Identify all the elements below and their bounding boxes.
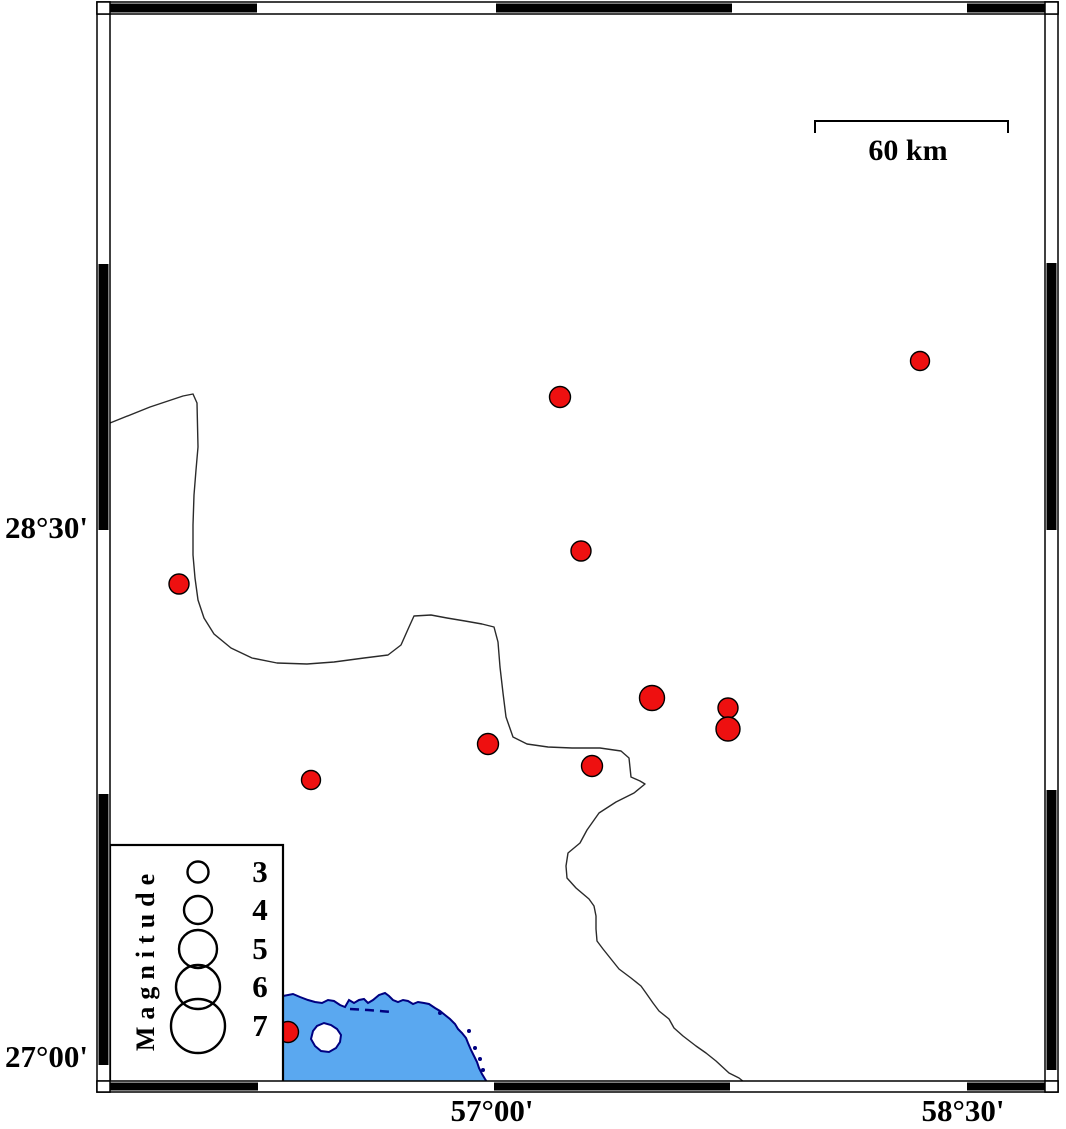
lon-label-58-30: 58°30' xyxy=(883,1092,1043,1129)
frame-segment xyxy=(494,1083,730,1091)
islet xyxy=(478,1057,482,1061)
frame-segment xyxy=(967,4,1045,13)
lon-label-57-00: 57°00' xyxy=(412,1092,572,1129)
lat-label-27-00: 27°00' xyxy=(0,1038,88,1076)
frame-segment xyxy=(103,1083,258,1091)
epicenter-dot xyxy=(478,734,499,755)
frame-segment xyxy=(967,1083,1045,1091)
epicenter-dot xyxy=(911,352,930,371)
legend-mag-label: 5 xyxy=(240,929,280,969)
epicenter-dot xyxy=(640,686,665,711)
legend-mag-label: 4 xyxy=(240,890,280,930)
scalebar-label: 60 km xyxy=(833,133,983,169)
legend-mag-label: 3 xyxy=(240,852,280,892)
islet xyxy=(481,1068,485,1072)
seismicity-map-page: 28°30' 27°00' 57°00' 58°30' 60 km Magnit… xyxy=(0,0,1066,1129)
frame-corner xyxy=(1045,2,1058,14)
legend-mag-label: 7 xyxy=(240,1006,280,1046)
islet xyxy=(473,1046,477,1050)
frame-segment xyxy=(99,794,109,1065)
islet xyxy=(438,1011,442,1015)
epicenter-dot xyxy=(582,756,603,777)
frame-corner xyxy=(97,2,110,14)
epicenter-dot xyxy=(718,698,738,718)
frame-segment xyxy=(1047,790,1057,1070)
legend-title: Magnitude xyxy=(131,867,161,1051)
epicenter-dot xyxy=(169,574,189,594)
frame-segment xyxy=(496,4,732,13)
lat-label-28-30: 28°30' xyxy=(0,509,88,547)
islet xyxy=(467,1029,471,1033)
frame-corner xyxy=(1045,1081,1058,1092)
epicenter-dot xyxy=(302,771,321,790)
frame-segment xyxy=(103,4,257,13)
frame-segment xyxy=(1047,263,1057,530)
epicenter-dot xyxy=(716,717,740,741)
epicenter-dot xyxy=(571,541,591,561)
epicenter-dot xyxy=(550,387,571,408)
legend-mag-label: 6 xyxy=(240,967,280,1007)
frame-segment xyxy=(99,264,109,530)
frame-corner xyxy=(97,1081,110,1092)
scalebar-bracket xyxy=(815,121,1008,133)
